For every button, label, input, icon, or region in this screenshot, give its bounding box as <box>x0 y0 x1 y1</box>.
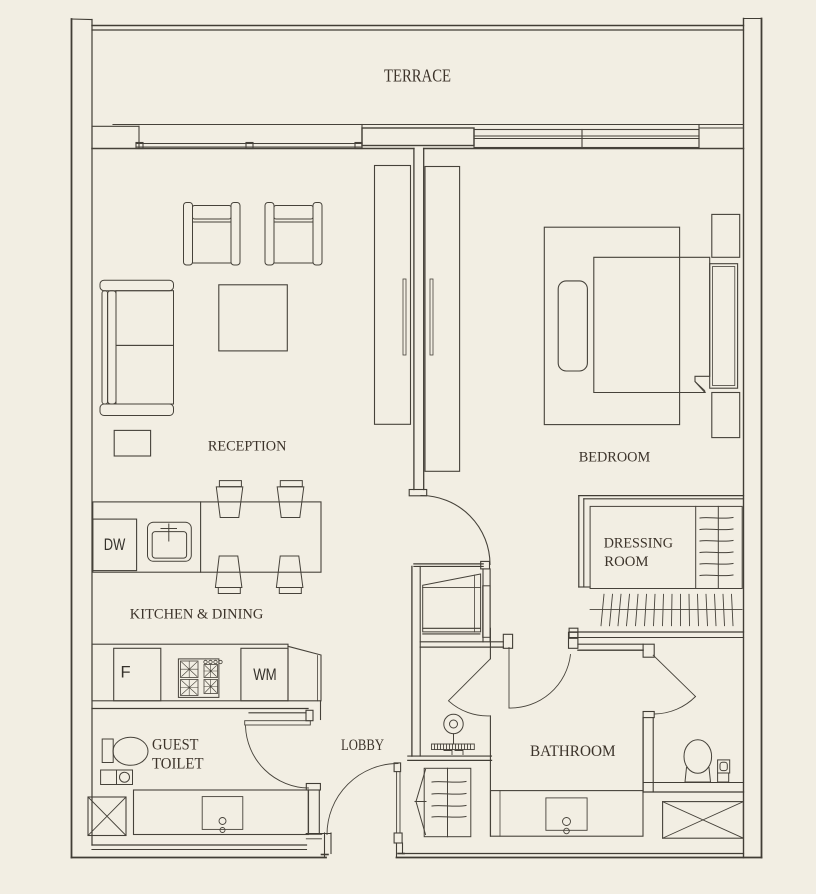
svg-text:GUEST: GUEST <box>152 737 199 754</box>
svg-text:LOBBY: LOBBY <box>341 737 384 754</box>
svg-text:BEDROOM: BEDROOM <box>579 449 651 465</box>
svg-text:F: F <box>121 664 131 682</box>
svg-text:WM: WM <box>253 665 277 684</box>
svg-text:BATHROOM: BATHROOM <box>530 743 616 760</box>
svg-text:DRESSING: DRESSING <box>604 536 674 552</box>
svg-text:DW: DW <box>104 535 126 554</box>
svg-text:KITCHEN & DINING: KITCHEN & DINING <box>130 607 264 623</box>
svg-text:RECEPTION: RECEPTION <box>208 439 287 455</box>
svg-text:ROOM: ROOM <box>604 554 648 570</box>
svg-text:TOILET: TOILET <box>152 756 204 773</box>
svg-text:TERRACE: TERRACE <box>384 66 451 86</box>
